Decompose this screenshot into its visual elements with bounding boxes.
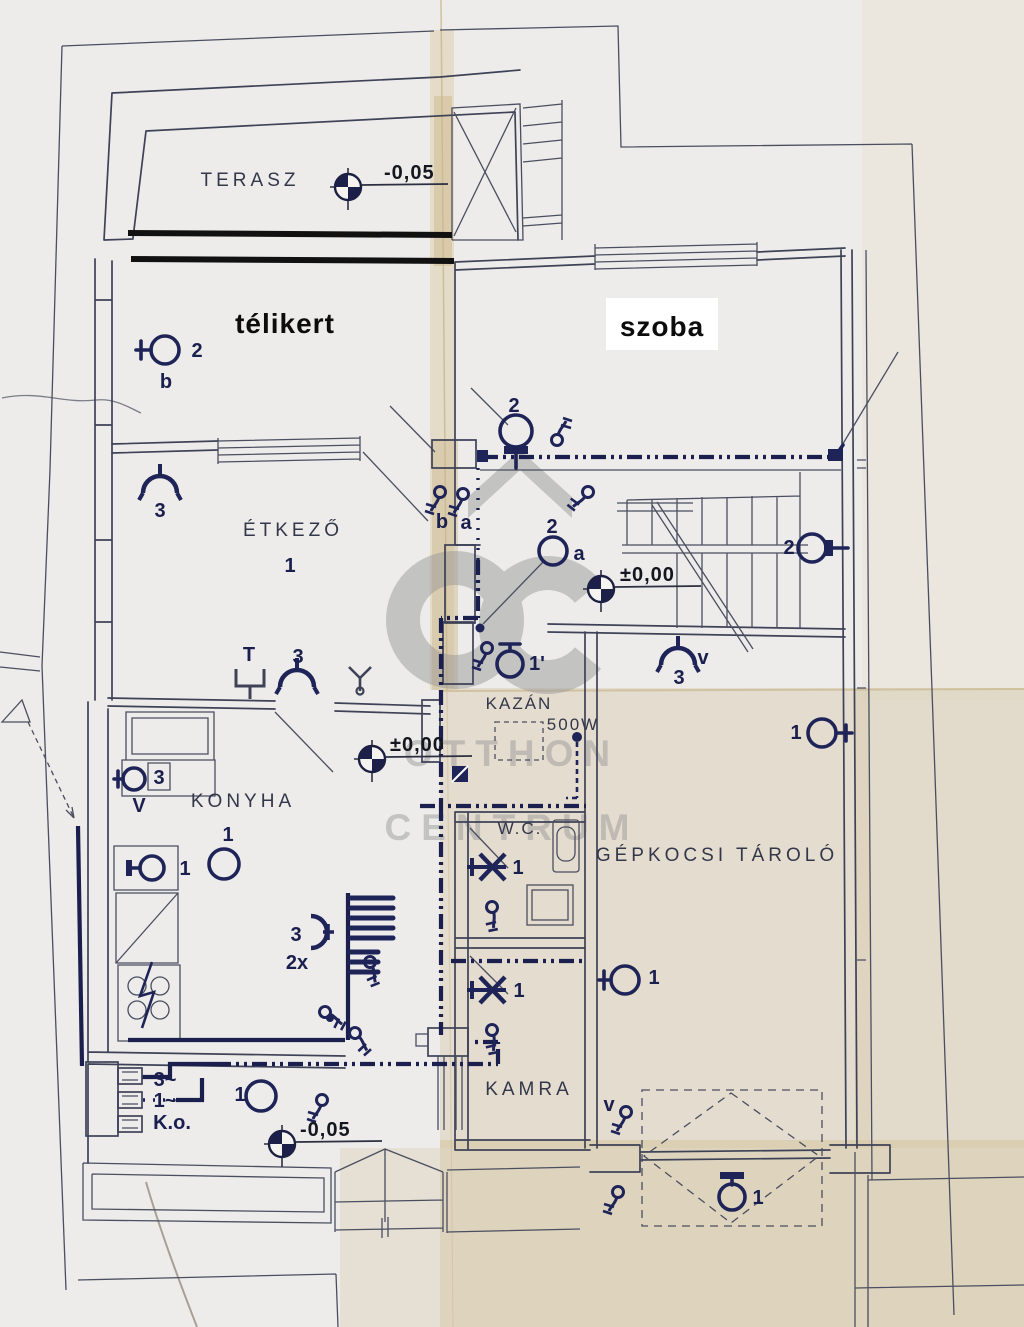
annotation-konyha-rose2-mult: 2x (286, 952, 308, 974)
annotation-hall-switch-a: a (460, 512, 472, 534)
annotation-konyha-point-count: 1 (222, 824, 233, 846)
annotation-etkezo-point-count: 1 (284, 555, 295, 577)
annotation-garage-rose-circuit: v (697, 647, 709, 669)
room-label-konyha: KONYHA (191, 791, 295, 812)
annotation-unit-vent: V (132, 795, 146, 817)
annotation-garage-lamp-bottom-count: 1 (648, 967, 659, 989)
annotation-feed-three-phase: 3~ (154, 1069, 177, 1091)
annotation-feed-ko: K.o. (153, 1112, 191, 1134)
annotation-kazan-lamp-count: 1' (529, 653, 545, 675)
floor-plan-svg: OTTHON CENTRUM (0, 0, 1024, 1327)
annotation-konyha-rose-count: 3 (292, 646, 303, 668)
annotation-szoba-lamp-count: 2 (508, 395, 519, 417)
konyha-level-text: ±0,00 (390, 734, 445, 756)
annotation-garage-rose-count: 3 (673, 667, 684, 689)
annotation-canopy-lamp-count: 1 (752, 1187, 763, 1209)
annotation-hall-lamp-count: 2 (546, 516, 557, 538)
room-label-kazan-power: 500W (547, 715, 599, 734)
annotation-konyha-wall-lamp-count: 1 (179, 858, 190, 880)
annotation-entry-lamp-count: 1 (234, 1084, 245, 1106)
annotation-hall-switch-b: b (436, 511, 448, 533)
terasz-edge-line (128, 233, 452, 235)
room-label-etkezo: ÉTKEZŐ (243, 519, 343, 541)
room-label-kamra: KAMRA (485, 1079, 573, 1100)
annotation-telikert-lamp-count: 2 (191, 340, 202, 362)
hall-level-text: ±0,00 (620, 564, 675, 586)
annotation-stair-lamp-count: 2 (783, 537, 794, 559)
annotation-kamra-vent: v (603, 1094, 615, 1116)
annotation-unit-lamp-count: 3 (153, 767, 164, 789)
annotation-telikert-circuit-b: b (160, 371, 172, 393)
room-label-szoba: szoba (620, 311, 704, 342)
annotation-wc-lamp-count: 1 (512, 857, 523, 879)
annotation-feed-single-phase: 1~ (154, 1090, 177, 1112)
annotation-konyha-rose2-count: 3 (290, 924, 301, 946)
room-label-wc: W.C. (498, 819, 543, 838)
terasz-level-text: -0,05 (384, 162, 435, 184)
annotation-hall-lamp-circuit: a (573, 543, 585, 565)
annotation-konyha-outlet-t: T (243, 644, 255, 666)
room-label-terasz: TERASZ (201, 170, 300, 191)
floor-plan-scan: OTTHON CENTRUM (0, 0, 1024, 1327)
room-label-kazan: KAZÁN (486, 694, 553, 713)
annotation-kamra-lamp-count: 1 (513, 980, 524, 1002)
room-label-garage: GÉPKOCSI TÁROLÓ (596, 844, 838, 866)
room-label-telikert: télikert (235, 308, 335, 339)
annotation-etkezo-rose-count: 3 (154, 500, 165, 522)
annotation-garage-lamp-top-count: 1 (790, 722, 801, 744)
garden-level-text: -0,05 (300, 1119, 351, 1141)
